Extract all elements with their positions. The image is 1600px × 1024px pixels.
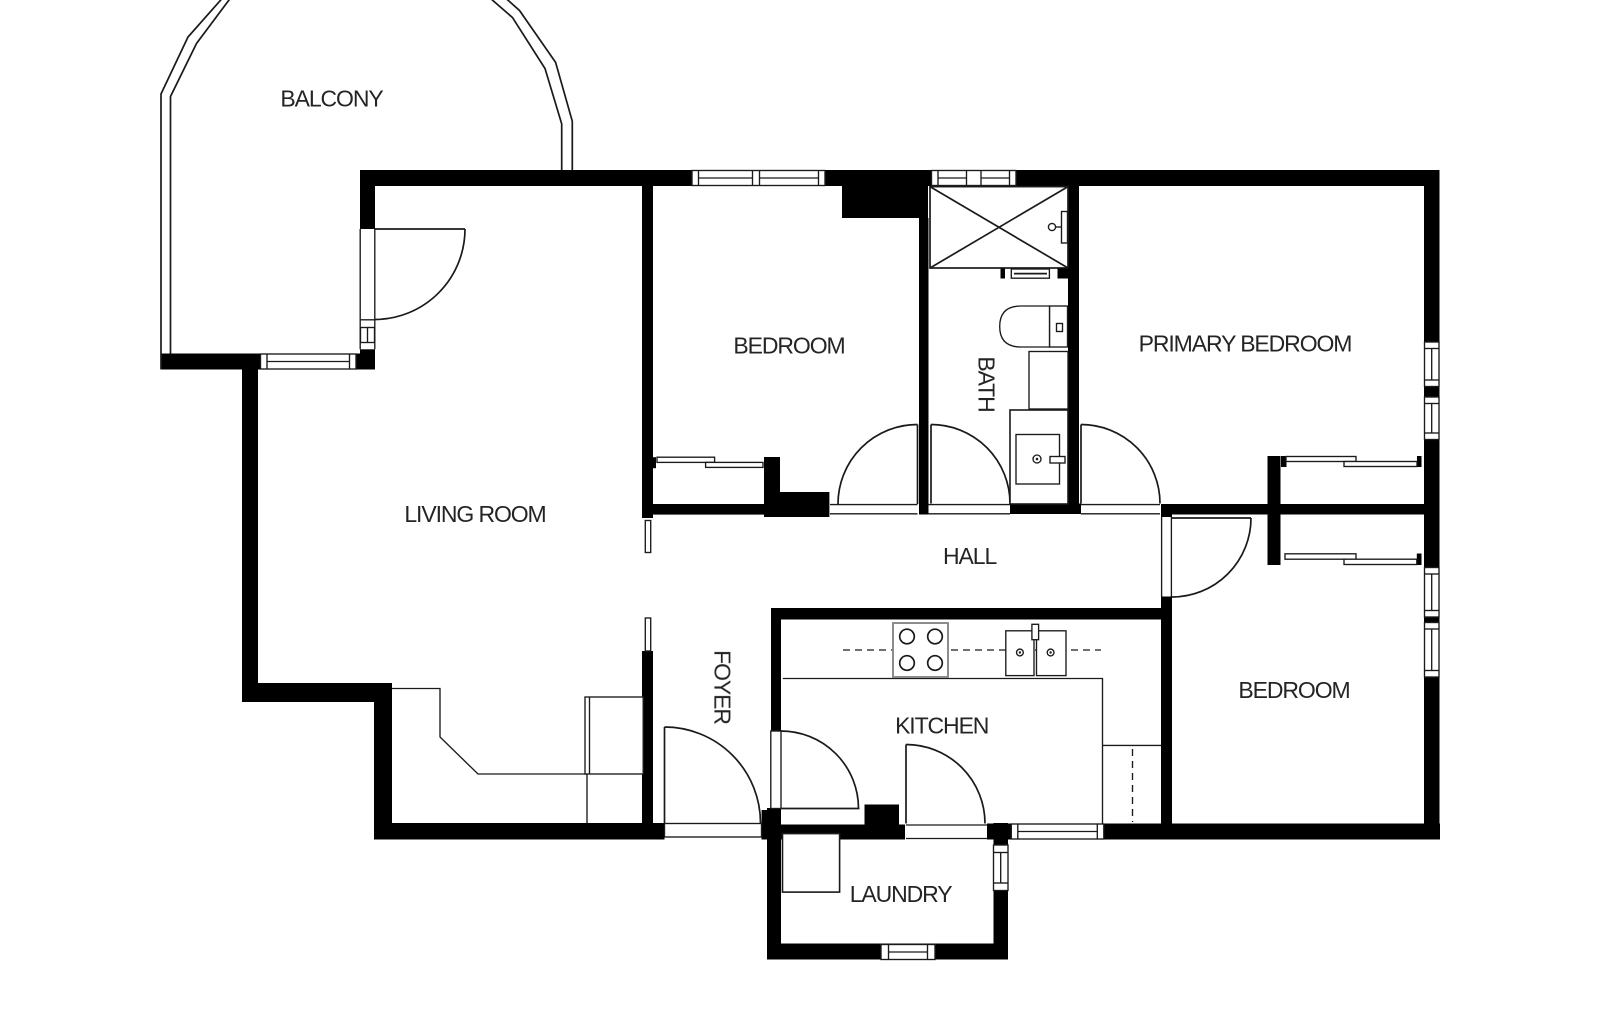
svg-text:BALCONY: BALCONY bbox=[280, 86, 383, 112]
svg-text:BEDROOM: BEDROOM bbox=[1238, 677, 1349, 703]
svg-text:BATH: BATH bbox=[973, 356, 999, 411]
svg-text:LIVING ROOM: LIVING ROOM bbox=[404, 501, 545, 527]
svg-text:KITCHEN: KITCHEN bbox=[895, 712, 988, 738]
svg-text:FOYER: FOYER bbox=[710, 650, 736, 724]
svg-text:PRIMARY BEDROOM: PRIMARY BEDROOM bbox=[1139, 330, 1352, 356]
svg-text:BEDROOM: BEDROOM bbox=[733, 332, 844, 358]
svg-text:LAUNDRY: LAUNDRY bbox=[850, 881, 953, 907]
svg-text:HALL: HALL bbox=[943, 543, 997, 569]
